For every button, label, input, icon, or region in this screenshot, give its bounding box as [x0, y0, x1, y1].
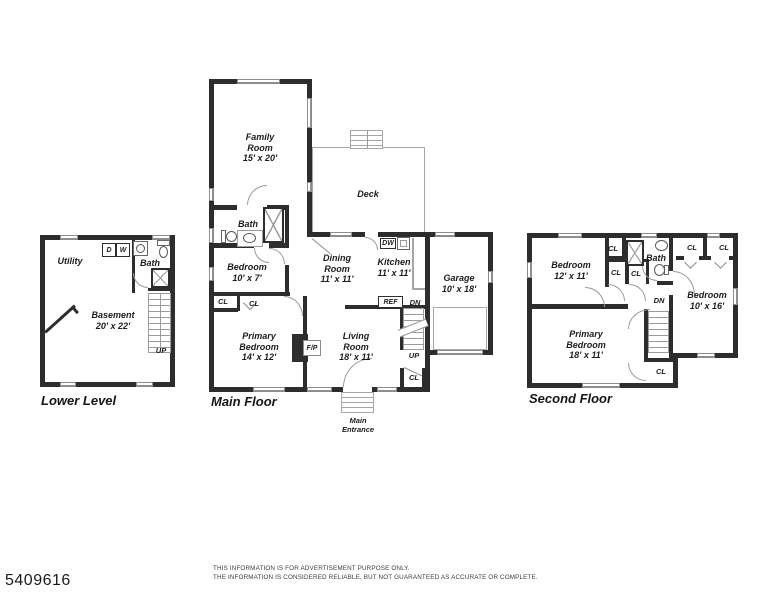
door-arc	[585, 287, 605, 307]
room-dims: 18' x 11'	[326, 352, 386, 363]
door-arc	[608, 284, 625, 301]
window	[435, 232, 455, 237]
room-dims: 10' x 16'	[677, 301, 737, 312]
listing-id: 5409616	[5, 572, 71, 590]
garage-door-outline	[433, 307, 487, 350]
laundry-sink-basin-icon	[136, 244, 145, 253]
toilet-bowl-icon	[654, 264, 665, 276]
room-name: Bedroom	[217, 262, 277, 273]
wall	[209, 308, 238, 312]
wall	[285, 205, 289, 248]
garage-door-sill	[437, 350, 483, 355]
room-name: Utility	[47, 256, 93, 267]
sink-icon	[655, 240, 668, 251]
door-arc	[284, 296, 303, 316]
room-label-utility: Utility	[47, 256, 93, 267]
stairs-up-label: UP	[406, 351, 422, 360]
main-floor-plan: DW REF F/P Family Room 15' x 20' Deck Ba…	[209, 79, 493, 359]
kitchen-sink-basin-icon	[400, 240, 407, 247]
window	[307, 182, 312, 192]
room-label-bedroom-front: Bedroom 12' x 11'	[541, 260, 601, 281]
stairs-down-label: DN	[650, 296, 668, 305]
room-label-living: Living Room 18' x 11'	[326, 331, 386, 363]
room-name: Bath	[233, 219, 263, 230]
room-label-family: Family Room 15' x 20'	[230, 132, 290, 164]
wall	[657, 281, 673, 285]
room-name: Bedroom	[677, 290, 737, 301]
room-name: Dining Room	[317, 253, 357, 274]
room-label-bath: Bath	[233, 219, 263, 230]
room-name: Bath	[135, 258, 165, 269]
door-arc	[365, 237, 378, 250]
wall	[648, 358, 673, 362]
sink-icon	[243, 233, 256, 243]
dryer-icon: D	[102, 243, 116, 257]
entrance-label: Main Entrance	[334, 416, 382, 434]
bifold-door-icon	[714, 256, 727, 269]
window	[209, 188, 214, 201]
room-name: Garage	[429, 273, 489, 284]
closet-label: CL	[406, 373, 422, 382]
room-label-bedroom: Bedroom 10' x 7'	[217, 262, 277, 283]
window	[558, 233, 582, 238]
room-label-basement: Basement 20' x 22'	[83, 310, 143, 331]
room-dims: 14' x 12'	[229, 352, 289, 363]
room-label-bedroom-rear: Bedroom 10' x 16'	[677, 290, 737, 311]
kitchen-counter-line	[412, 288, 426, 290]
lower-level-plan: D W Utility Bath Basement 20' x 22' UP	[40, 235, 175, 387]
stairs-down-label: DN	[407, 298, 423, 307]
door-arc	[629, 284, 646, 301]
room-name: Basement	[83, 310, 143, 321]
shower-icon	[263, 207, 284, 243]
room-label-kitchen: Kitchen 11' x 11'	[364, 257, 424, 278]
stairs-up	[148, 293, 171, 353]
door-arc	[254, 248, 269, 263]
window	[527, 262, 532, 278]
refrigerator-label: REF	[384, 299, 398, 306]
fireplace-icon: F/P	[303, 340, 321, 356]
wall	[214, 205, 237, 210]
door-arc	[133, 273, 148, 288]
refrigerator-icon: REF	[378, 296, 403, 308]
second-floor-title: Second Floor	[529, 391, 612, 406]
room-name: Primary Bedroom	[560, 329, 612, 350]
wall	[527, 233, 532, 388]
window	[582, 383, 620, 388]
room-label-primary: Primary Bedroom 18' x 11'	[556, 329, 616, 361]
closet-label: CL	[628, 269, 644, 278]
disclaimer-line-1: THIS INFORMATION IS FOR ADVERTISEMENT PU…	[213, 565, 410, 573]
window	[237, 79, 280, 84]
toilet-bowl-icon	[159, 246, 168, 258]
shower-icon	[151, 268, 170, 288]
lower-level-title: Lower Level	[41, 393, 116, 408]
door-arc	[247, 185, 267, 205]
room-name: Kitchen	[364, 257, 424, 268]
room-dims: 18' x 11'	[556, 350, 616, 361]
wall	[699, 256, 711, 260]
window	[136, 382, 153, 387]
floorplan-page: D W Utility Bath Basement 20' x 22' UP L…	[0, 0, 768, 594]
closet-label: CL	[684, 243, 700, 252]
dishwasher-label: DW	[382, 240, 394, 247]
room-dims: 10' x 7'	[217, 273, 277, 284]
room-dims: 20' x 22'	[83, 321, 143, 332]
room-name: Bath	[639, 253, 673, 264]
room-dims: 11' x 11'	[364, 268, 424, 279]
stairs-down	[648, 311, 669, 353]
wall	[673, 353, 678, 388]
wall	[729, 256, 733, 260]
room-label-bath: Bath	[639, 253, 673, 264]
window	[209, 267, 214, 281]
window	[641, 233, 657, 238]
window	[307, 387, 332, 392]
room-label-deck: Deck	[348, 189, 388, 200]
window	[697, 353, 715, 358]
window	[60, 235, 78, 240]
stairs-up-label: UP	[153, 346, 169, 355]
window	[209, 228, 214, 243]
wall	[303, 296, 307, 334]
door-arc	[628, 363, 646, 381]
door-leaf	[312, 238, 331, 254]
closet-label: CL	[608, 268, 624, 277]
window	[253, 387, 285, 392]
room-name: Deck	[348, 189, 388, 200]
wall	[527, 304, 628, 309]
room-name: Primary Bedroom	[233, 331, 285, 352]
wall	[676, 256, 684, 260]
window	[707, 233, 720, 238]
wall	[40, 235, 45, 387]
window	[377, 387, 397, 392]
room-dims: 12' x 11'	[541, 271, 601, 282]
wall	[669, 295, 673, 358]
room-label-primary: Primary Bedroom 14' x 12'	[229, 331, 289, 363]
room-dims: 11' x 11'	[307, 274, 367, 285]
dishwasher-icon: DW	[380, 238, 396, 249]
main-floor-title: Main Floor	[211, 394, 277, 409]
wall	[148, 288, 170, 291]
closet-label: CL	[215, 297, 231, 306]
room-label-bath: Bath	[135, 258, 165, 269]
closet-label: CL	[246, 299, 262, 308]
wall	[400, 368, 404, 392]
window	[60, 382, 76, 387]
room-name: Bedroom	[541, 260, 601, 271]
entrance-steps	[341, 392, 374, 413]
door-arc	[628, 309, 650, 329]
wall	[422, 368, 426, 392]
room-dims: 10' x 18'	[429, 284, 489, 295]
window	[330, 232, 352, 237]
window	[307, 98, 312, 128]
closet-label: CL	[605, 244, 621, 253]
dryer-label: D	[106, 247, 111, 254]
wall	[303, 362, 307, 387]
room-dims: 15' x 20'	[230, 153, 290, 164]
toilet-bowl-icon	[226, 231, 237, 242]
washer-label: W	[120, 247, 127, 254]
room-label-dining: Dining Room 11' x 11'	[307, 253, 367, 285]
room-label-garage: Garage 10' x 18'	[429, 273, 489, 294]
wall	[269, 243, 289, 248]
disclaimer-line-2: THE INFORMATION IS CONSIDERED RELIABLE, …	[213, 574, 538, 582]
support-beam-icon	[44, 305, 75, 334]
deck-stairs	[350, 130, 383, 149]
bifold-door-icon	[684, 256, 697, 269]
fireplace-label: F/P	[307, 345, 318, 352]
second-floor-plan: Bedroom 12' x 11' Bath Bedroom 10' x 16'…	[527, 233, 738, 388]
room-name: Family Room	[237, 132, 283, 153]
closet-label: CL	[653, 367, 669, 376]
wall	[285, 265, 289, 292]
closet-label: CL	[716, 243, 732, 252]
room-name: Living Room	[336, 331, 376, 352]
washer-icon: W	[116, 243, 130, 257]
